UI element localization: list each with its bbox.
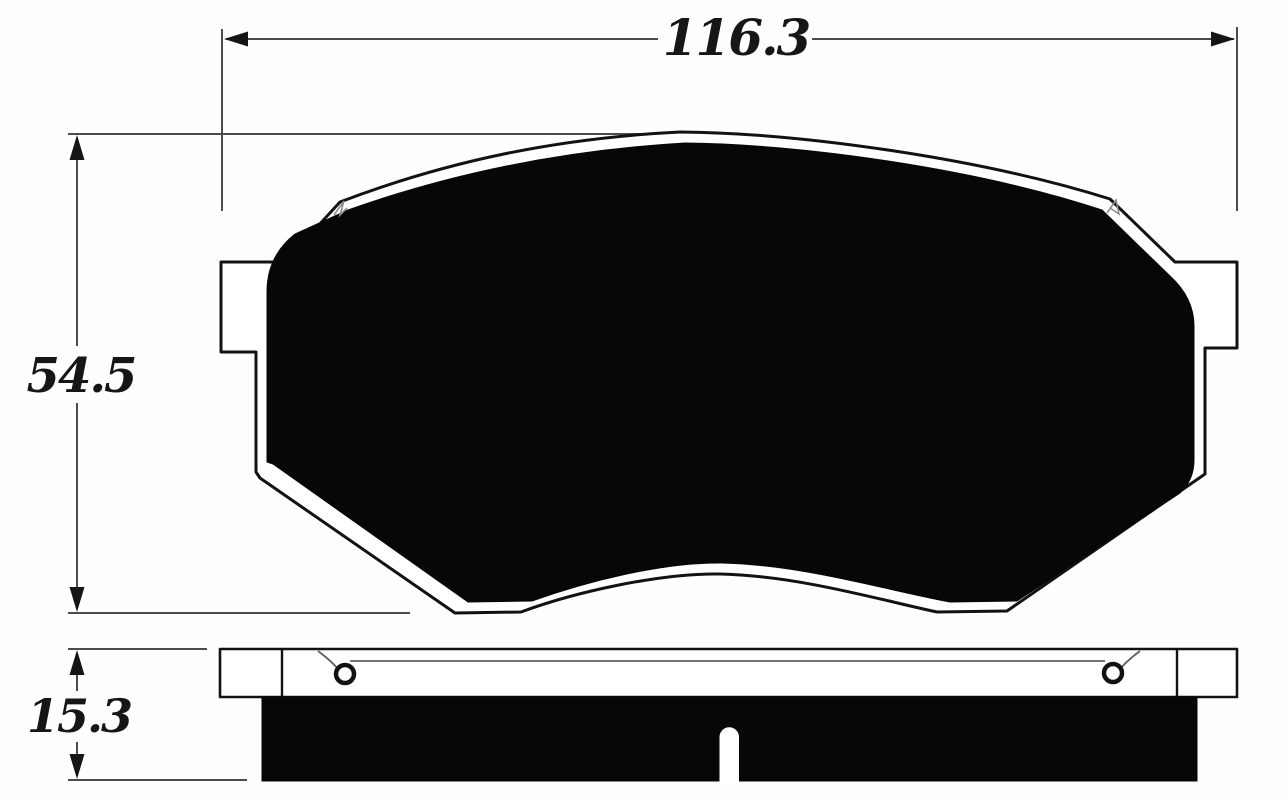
arrowhead-down-icon xyxy=(70,587,85,612)
arrowhead-up-icon xyxy=(70,650,85,675)
backing-plate-side xyxy=(220,649,1237,697)
arrowhead-up-icon xyxy=(70,135,85,160)
dimension-height-label: 54.5 xyxy=(27,348,136,404)
dimension-width-label: 116.3 xyxy=(663,8,810,67)
dimension-thickness: 15.3 xyxy=(27,649,247,780)
arrowhead-right-icon xyxy=(1211,32,1235,47)
arrowhead-down-icon xyxy=(70,754,85,779)
dimension-thickness-label: 15.3 xyxy=(27,689,132,743)
rivet-hole-left xyxy=(336,665,354,683)
friction-material xyxy=(267,143,1194,602)
center-slot xyxy=(720,727,740,782)
arrowhead-left-icon xyxy=(224,32,248,47)
rivet-hole-right xyxy=(1104,664,1122,682)
side-view xyxy=(220,649,1237,782)
brake-pad-drawing: 116.3 54.5 15.3 xyxy=(0,0,1288,800)
front-view xyxy=(221,132,1237,613)
diagram-canvas: 116.3 54.5 15.3 xyxy=(0,0,1288,800)
